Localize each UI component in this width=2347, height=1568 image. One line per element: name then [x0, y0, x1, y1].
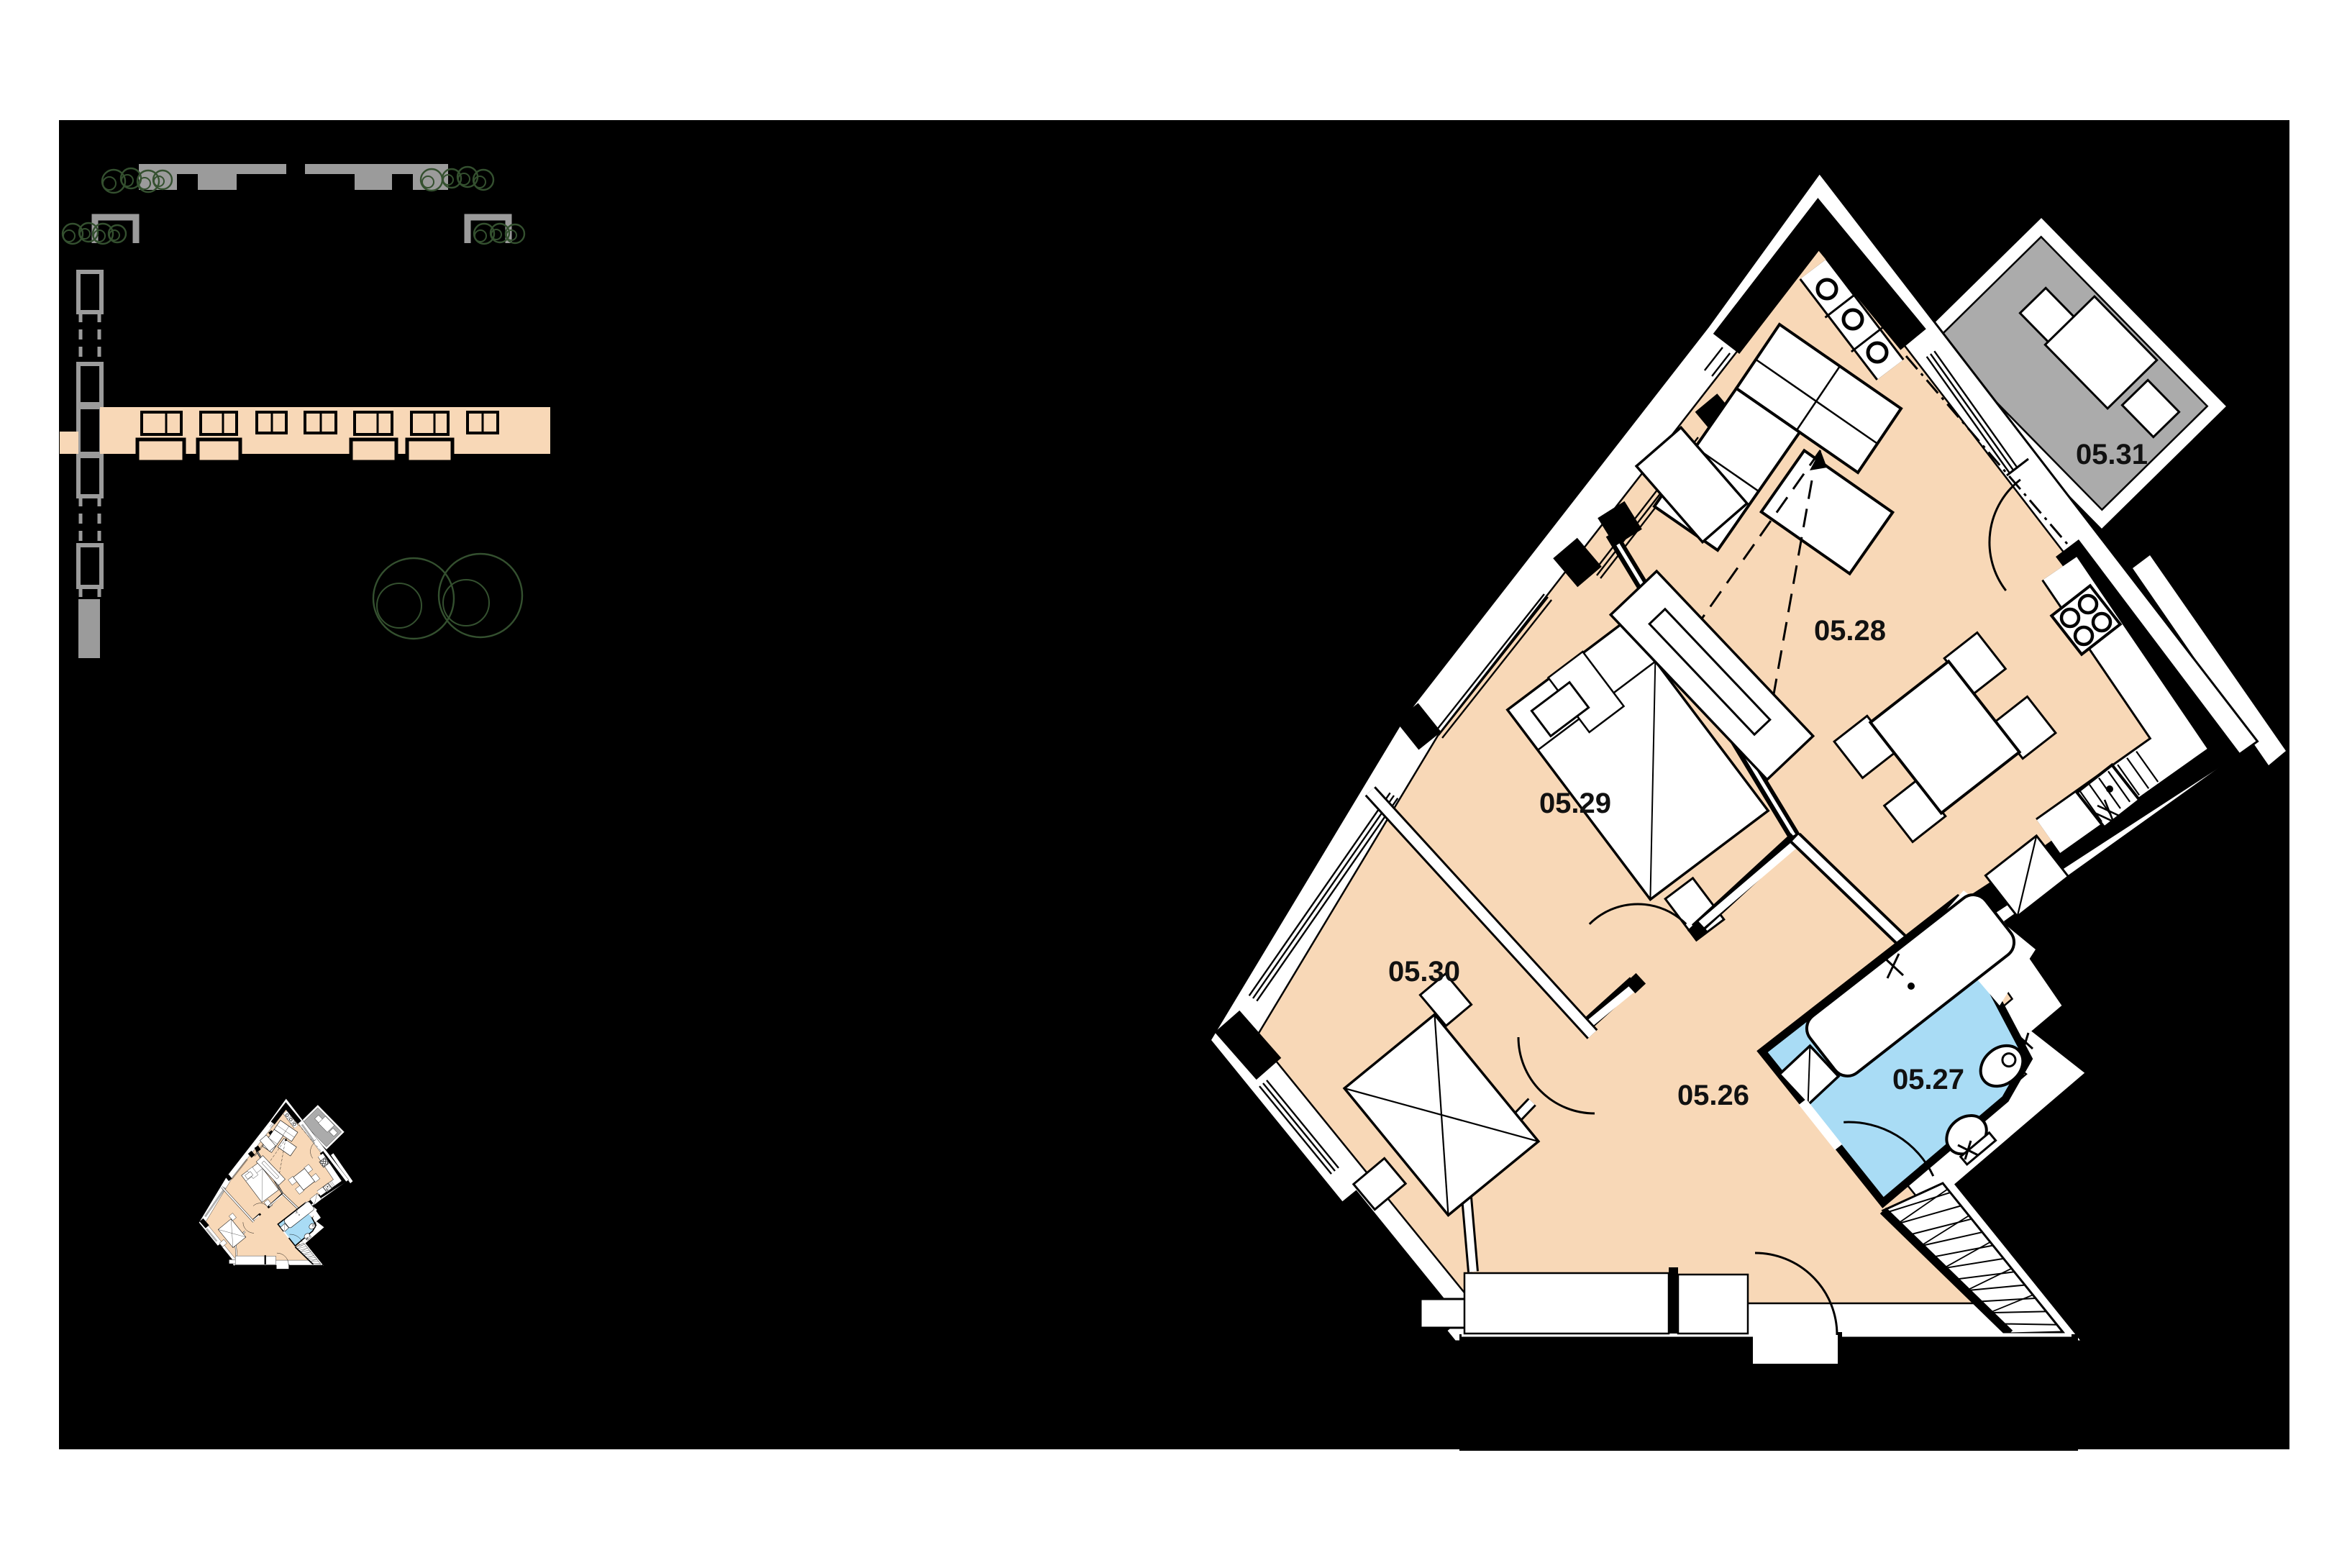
svg-text:05.27: 05.27 — [1892, 1064, 1964, 1095]
svg-text:05.29: 05.29 — [1539, 788, 1611, 819]
svg-text:05.28: 05.28 — [1814, 615, 1886, 647]
svg-text:05.26: 05.26 — [1677, 1080, 1749, 1111]
svg-text:05.30: 05.30 — [1388, 956, 1460, 988]
svg-text:05.31: 05.31 — [2076, 439, 2148, 470]
